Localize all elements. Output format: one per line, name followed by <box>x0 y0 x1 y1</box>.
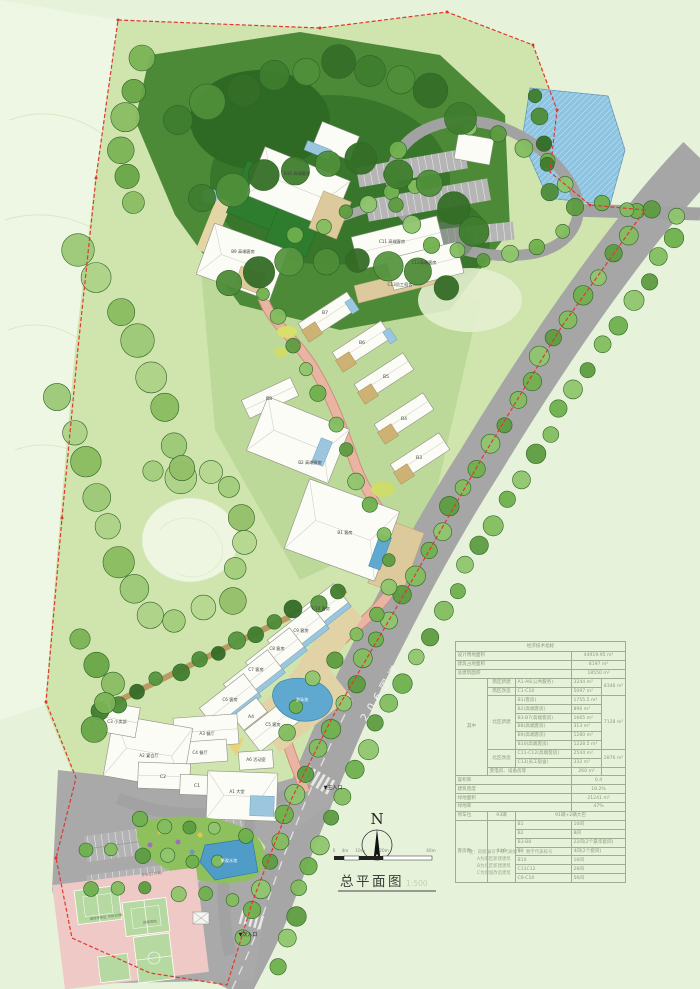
stats-cell: 1280 m² <box>572 732 602 741</box>
tree <box>350 628 363 641</box>
tree <box>293 58 320 85</box>
tree <box>529 346 549 366</box>
label-b2: B2 高端客房 <box>298 459 322 466</box>
tree <box>188 184 215 211</box>
tree <box>169 455 194 480</box>
stats-cell: 21241 m² <box>572 794 626 803</box>
stats-cell: 北区新建 <box>488 696 516 749</box>
tree <box>526 444 546 464</box>
title-text: 总平面图 <box>340 874 404 890</box>
tree <box>300 858 317 875</box>
tree <box>211 646 225 660</box>
tree <box>573 286 593 306</box>
tree <box>641 274 657 290</box>
stats-cell: 28间 <box>572 865 626 874</box>
stats-cell: 8346 m² <box>602 678 626 696</box>
tree <box>226 894 239 907</box>
tree <box>322 45 356 79</box>
tree <box>540 157 554 171</box>
tree <box>267 615 282 630</box>
stats-cell: 260 m² <box>572 767 602 776</box>
label-b4: B4 <box>401 416 407 422</box>
tree <box>111 103 140 132</box>
label-b8: B8 <box>266 396 272 402</box>
stats-cell: 容积率 <box>456 776 572 785</box>
tree <box>564 380 583 399</box>
stats-cell: B2(高端客房) <box>516 705 572 714</box>
tree <box>531 108 548 125</box>
tree <box>220 588 247 615</box>
stats-cell: 18550 m² <box>572 669 626 678</box>
stats-cell: 1228.5 m² <box>572 740 602 749</box>
label-b6: B6 <box>359 340 365 346</box>
stats-cell: 南区新建 <box>488 678 516 687</box>
tree <box>556 224 570 238</box>
label-c11: C11 高端客房 <box>379 238 405 245</box>
tree <box>536 136 552 152</box>
tree <box>389 141 406 158</box>
stats-cell: 10间 <box>572 820 626 829</box>
stats-cell: B10(高端客房) <box>516 740 572 749</box>
tree <box>115 164 139 188</box>
tree <box>248 160 279 191</box>
tree <box>163 610 186 633</box>
stats-cell: B1 <box>516 820 572 829</box>
tree <box>227 74 260 107</box>
tree <box>346 249 370 273</box>
tree <box>377 528 391 542</box>
stats-cell: C1-C10 <box>516 687 572 696</box>
tree <box>455 480 471 496</box>
tree <box>79 843 93 857</box>
tree <box>510 391 527 408</box>
label-c2: C2 <box>160 774 166 780</box>
tree <box>81 716 107 742</box>
tree <box>259 60 289 90</box>
tree <box>541 183 558 200</box>
stats-cell: 332 m² <box>572 758 602 767</box>
label-c8: C8 客房 <box>269 645 284 652</box>
tree <box>315 151 341 177</box>
stats-cell: 其中 <box>456 678 488 776</box>
tree <box>421 629 438 646</box>
stats-cell: 南区改造 <box>488 687 516 696</box>
tree <box>173 664 190 681</box>
tree <box>664 228 684 248</box>
tree <box>413 73 448 108</box>
label-c9: C9 客房 <box>293 627 308 634</box>
label-a6: A6 活动室 <box>246 756 265 763</box>
stats-cell: B3-B8 <box>516 838 572 847</box>
tree <box>108 299 135 326</box>
tree <box>384 160 413 189</box>
stats-cell: 7128 m² <box>602 696 626 749</box>
tree <box>358 740 378 760</box>
stats-cell: C13(员工宿舍) <box>516 758 572 767</box>
tree <box>580 363 595 378</box>
label-c4: C4 餐厅 <box>192 749 207 756</box>
tree <box>84 652 109 677</box>
sports-courts <box>52 867 209 989</box>
tree <box>450 584 465 599</box>
label-c3: C3 小卖部 <box>107 718 126 725</box>
stats-cell <box>602 767 626 776</box>
tree <box>139 882 151 894</box>
tree <box>327 652 343 668</box>
tree <box>305 671 320 686</box>
tree <box>103 547 134 578</box>
stats-cell: B9(高端客房) <box>516 732 572 741</box>
label-c12: C12高端客房 <box>411 259 436 266</box>
tree <box>346 760 365 779</box>
scale-tick-20: 20m <box>379 848 388 853</box>
tree <box>470 536 489 555</box>
tree <box>310 836 329 855</box>
tree <box>416 170 442 196</box>
tree <box>445 103 477 135</box>
label-secondary-entrance: ▼次入口 <box>239 931 258 938</box>
stats-cell: 设计用地面积 <box>456 652 572 661</box>
tree <box>643 201 660 218</box>
tree <box>137 602 163 628</box>
tree <box>163 105 192 134</box>
bare-hill <box>142 498 238 582</box>
stats-cell: 绿地率 <box>456 803 572 812</box>
stats-cell: 93辆 <box>488 812 516 821</box>
stats-cell: 0.4 <box>572 776 626 785</box>
tree <box>523 372 542 391</box>
tree <box>403 215 421 233</box>
note-line: B为北区新建建筑 <box>469 863 552 870</box>
tree <box>421 542 437 558</box>
tree <box>321 719 341 739</box>
note-line: C为保留改造建筑 <box>469 870 552 877</box>
stats-cell: 1755.5 m² <box>572 696 602 705</box>
tree <box>105 843 118 856</box>
label-b5: B5 <box>383 374 389 380</box>
tree <box>348 676 365 693</box>
tree <box>450 243 465 258</box>
stats-cell: B8(高端客房) <box>516 723 572 732</box>
tree <box>408 649 424 665</box>
stats-cell: 18.2% <box>572 785 626 794</box>
tree <box>529 239 545 255</box>
tree <box>216 270 241 295</box>
stats-cell: 47% <box>572 803 626 812</box>
tree <box>161 433 187 459</box>
stats-cell: 44919.95 m² <box>572 652 626 661</box>
stats-cell: 绿地面积 <box>456 794 572 803</box>
tree <box>619 226 638 245</box>
tree <box>550 400 567 417</box>
tree <box>545 330 561 346</box>
title-scale: 1:500 <box>406 879 428 888</box>
tree <box>95 514 120 539</box>
stats-cell: 北区改造 <box>488 749 516 767</box>
tree <box>440 496 460 516</box>
tree <box>490 126 506 142</box>
stats-cell: B2 <box>516 829 572 838</box>
label-a1: A1 大堂 <box>229 788 244 795</box>
stats-cell: 停车位 <box>456 812 488 821</box>
tree <box>513 471 531 489</box>
stats-cell: 建筑占地面积 <box>456 660 572 669</box>
stats-table: 经济技术指标设计用地面积44919.95 m²建筑占地面积8197 m²总建筑面… <box>455 641 625 883</box>
tree <box>502 245 519 262</box>
tree <box>270 308 286 324</box>
tree <box>310 385 326 401</box>
tree <box>313 249 339 275</box>
stats-cell: 896 m² <box>572 705 602 714</box>
tree <box>481 434 500 453</box>
tree <box>279 724 296 741</box>
tree <box>483 516 503 536</box>
scale-tick-40: 40m <box>426 848 435 853</box>
label-a3: A3 餐厅 <box>199 730 214 737</box>
tree <box>233 530 257 554</box>
tree <box>286 338 301 353</box>
tree <box>243 257 274 288</box>
stats-cell: 313 m² <box>572 723 602 732</box>
tree <box>515 139 533 157</box>
label-b3: B3 <box>416 455 422 461</box>
tree <box>191 595 216 620</box>
tree <box>171 887 186 902</box>
tree <box>387 66 415 94</box>
tree <box>228 505 254 531</box>
tree <box>287 907 307 927</box>
stats-cell: 经济技术指标 <box>456 642 626 652</box>
tree <box>354 55 385 86</box>
tree <box>559 311 577 329</box>
tree <box>208 822 220 834</box>
scale-bar: 0 4m 10m 20m 40m <box>333 848 436 860</box>
scale-tick-4: 4m <box>342 848 349 853</box>
stats-cell: B1(客房) <box>516 696 572 705</box>
tree <box>345 143 377 175</box>
site-plan-canvas: B10 高端客房 B9 高端客房 C11 高端客房 C12高端客房 C13员工宿… <box>0 0 700 989</box>
tree <box>382 554 395 567</box>
tree <box>270 959 286 975</box>
label-c7: C7 客房 <box>248 666 263 673</box>
note-line: A为南区新建建筑 <box>469 856 552 863</box>
tree <box>499 491 515 507</box>
tree <box>300 363 313 376</box>
tree <box>324 810 339 825</box>
stats-cell: 2544 m² <box>572 749 602 758</box>
tree <box>120 574 149 603</box>
tree <box>149 672 163 686</box>
tree <box>434 601 453 620</box>
tree <box>275 805 294 824</box>
tree <box>83 484 111 512</box>
stats-cell: 2876 m² <box>602 749 626 767</box>
tree <box>84 882 99 897</box>
label-c1: C1 <box>194 783 200 789</box>
tree <box>287 227 303 243</box>
table-notes: 注：房屋编号字母代表如下，数字代表栋号 A为南区新建建筑 B为北区新建建筑 C为… <box>469 849 552 877</box>
note-line: 注：房屋编号字母代表如下，数字代表栋号 <box>469 849 552 856</box>
tree <box>199 460 222 483</box>
tree <box>216 173 250 207</box>
tree <box>94 692 115 713</box>
tree <box>183 821 196 834</box>
tree <box>330 584 345 599</box>
stats-cell: 变电房、设备房等 <box>488 767 572 776</box>
tree <box>669 208 685 224</box>
label-b1: B1 客房 <box>337 529 352 536</box>
label-c6: C6 客房 <box>222 696 237 703</box>
stats-cell: 总建筑面积 <box>456 669 572 678</box>
stats-cell: 56间 <box>572 874 626 883</box>
tree <box>566 198 583 215</box>
tree <box>459 217 489 247</box>
tree <box>218 476 239 497</box>
tree <box>620 203 634 217</box>
tree <box>199 887 213 901</box>
tree <box>609 317 628 336</box>
scale-tick-10: 10m <box>355 848 364 853</box>
tree <box>158 820 172 834</box>
tree <box>339 443 353 457</box>
label-a2: A2 宴会厅 <box>139 752 158 759</box>
tree <box>291 880 307 896</box>
label-swimming-pool: 游泳池 <box>296 696 309 703</box>
tree <box>275 247 304 276</box>
tree <box>121 324 155 358</box>
tree <box>389 198 404 213</box>
stats-cell: 8197 m² <box>572 660 626 669</box>
tree <box>370 607 385 622</box>
scale-tick-0: 0 <box>333 848 336 853</box>
stats-cell: 8间 <box>572 829 626 838</box>
tree <box>101 672 124 695</box>
tree <box>624 290 644 310</box>
tree <box>594 195 610 211</box>
tree <box>135 848 151 864</box>
tree <box>239 829 254 844</box>
tree <box>132 811 148 827</box>
tree <box>190 84 226 120</box>
tree <box>348 473 365 490</box>
label-b7: B7 <box>322 310 328 316</box>
tree <box>309 739 327 757</box>
tree <box>468 460 485 477</box>
tree <box>143 461 163 481</box>
label-c5: C5 客房 <box>265 721 280 728</box>
tree <box>594 336 611 353</box>
label-b10: B10 高端客房 <box>284 170 310 177</box>
stats-cell: 16间 <box>572 856 626 865</box>
tree <box>63 421 88 446</box>
stats-cell: C11-C12(高端客房) <box>516 749 572 758</box>
tree <box>136 362 167 393</box>
tree <box>285 784 305 804</box>
drawing-title: 总平面图 1:500 <box>338 874 436 891</box>
tree <box>186 855 199 868</box>
tree <box>111 882 125 896</box>
tree <box>381 579 397 595</box>
tree <box>43 383 70 410</box>
tree <box>374 251 404 281</box>
tree <box>71 446 102 477</box>
tree <box>477 254 491 268</box>
tree <box>434 276 459 301</box>
tree <box>70 629 90 649</box>
tree <box>297 766 313 782</box>
stats-cell: 4间(2个套间) <box>572 847 626 856</box>
tree <box>317 219 332 234</box>
stats-cell: 1665 m² <box>572 714 602 723</box>
stats-cell: 3244 m² <box>572 678 602 687</box>
label-a4: A4 <box>248 714 254 720</box>
stats-cell: 建筑密度 <box>456 785 572 794</box>
tree <box>130 684 145 699</box>
tree <box>248 627 264 643</box>
tree <box>129 45 155 71</box>
utility-box <box>193 912 209 924</box>
label-c10: C10 客房 <box>312 605 330 612</box>
tree <box>272 833 289 850</box>
tree <box>362 497 377 512</box>
tree <box>122 192 144 214</box>
tree <box>329 417 344 432</box>
label-main-entrance: ▼主入口 <box>324 784 343 791</box>
tree <box>122 79 146 103</box>
tree <box>457 556 474 573</box>
north-letter: N <box>370 810 383 828</box>
tree <box>192 652 208 668</box>
tree <box>339 205 353 219</box>
label-b9: B9 高端客房 <box>231 248 255 255</box>
tree <box>228 632 245 649</box>
stats-cell: 91辆+2辆大巴 <box>516 812 626 821</box>
tree <box>284 600 302 618</box>
tree <box>278 929 296 947</box>
tree <box>543 427 559 443</box>
stats-cell: A1-A6(公共服务) <box>516 678 572 687</box>
tree <box>161 848 175 862</box>
label-landscape-pond: 景观水池 <box>221 857 239 864</box>
tree <box>107 137 134 164</box>
indicator-table: 经济技术指标设计用地面积44919.95 m²建筑占地面积8197 m²总建筑面… <box>455 641 626 883</box>
tree <box>405 566 425 586</box>
tree <box>528 89 542 103</box>
tree <box>649 248 667 266</box>
tree <box>257 288 270 301</box>
tree <box>151 393 179 421</box>
tree <box>224 557 246 579</box>
tree <box>423 237 439 253</box>
tree <box>360 196 377 213</box>
label-c13: C13员工宿舍 <box>387 281 413 288</box>
stats-cell: 5097 m² <box>572 687 602 696</box>
stats-cell: 22间(2个豪华套间) <box>572 838 626 847</box>
stats-cell: B3-B7(高端客房) <box>516 714 572 723</box>
